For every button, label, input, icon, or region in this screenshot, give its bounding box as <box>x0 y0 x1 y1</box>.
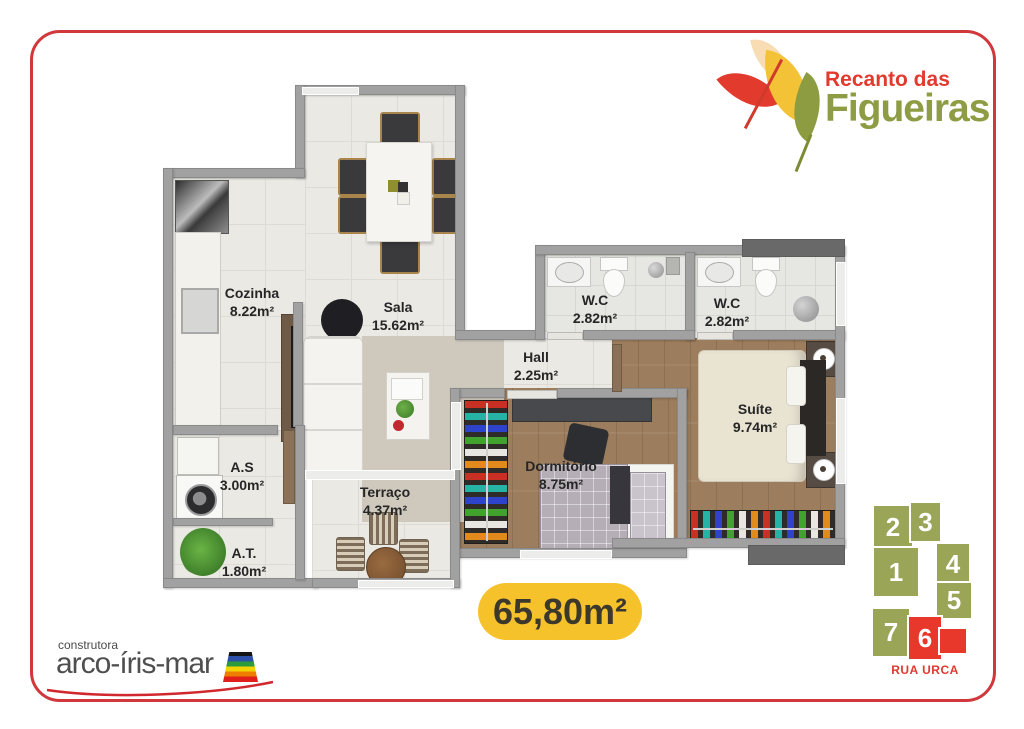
label-sala: Sala 15.62m² <box>343 299 453 334</box>
table-centerpiece <box>397 192 410 205</box>
window-wc2 <box>836 262 846 326</box>
door-wc2 <box>697 332 733 340</box>
wall-sala-right <box>455 85 465 338</box>
rainbow-trapezoid-icon <box>223 652 258 682</box>
dining-chair <box>380 112 420 146</box>
wall-left <box>163 168 173 588</box>
room-name: A.S <box>187 459 297 477</box>
door-suite <box>612 344 622 392</box>
room-name: A.T. <box>189 545 299 563</box>
room-area: 3.00m² <box>187 477 297 495</box>
keyplan-unit-7: 7 <box>871 607 911 658</box>
room-name: Sala <box>343 299 453 317</box>
total-area-badge: 65,80m² <box>478 583 642 640</box>
stove <box>175 180 229 234</box>
room-area: 2.82m² <box>672 313 782 331</box>
label-hall: Hall 2.25m² <box>481 349 591 384</box>
keyplan-unit-3: 3 <box>909 501 942 543</box>
dorm-bed-pillow <box>630 472 666 542</box>
wc2-vanity <box>697 257 741 287</box>
coffee-table-tray <box>391 378 423 400</box>
building-keyplan: 2 3 4 1 5 7 6 RUA URCA <box>862 495 982 690</box>
room-name: W.C <box>540 292 650 310</box>
wall-service-divider <box>173 518 273 526</box>
door-dormitorio <box>507 390 557 399</box>
room-area: 9.74m² <box>700 419 810 437</box>
room-area: 4.37m² <box>330 502 440 520</box>
builder-logo: construtora arco-íris-mar <box>45 636 275 698</box>
room-name: Dormitório <box>506 458 616 476</box>
label-suite: Suíte 9.74m² <box>700 401 810 436</box>
wall-hall-top-right <box>733 330 845 340</box>
wc1-shower-head <box>648 262 664 278</box>
dining-chair <box>380 240 420 274</box>
brand-name-line2: Figueiras <box>825 87 989 131</box>
wall-kitchen-divider <box>293 302 303 427</box>
window-terrace-bottom <box>358 580 454 588</box>
wall-shaft-top-right <box>742 239 845 257</box>
label-dormitorio: Dormitório 8.75m² <box>506 458 616 493</box>
label-terraco: Terraço 4.37m² <box>330 484 440 519</box>
keyplan-unit-2: 2 <box>872 504 914 550</box>
wall-step-vertical <box>295 85 305 178</box>
wall-service-top <box>173 425 278 435</box>
keyplan-unit-4: 4 <box>935 542 971 586</box>
wall-hall-top-mid <box>583 330 695 340</box>
room-name: Hall <box>481 349 591 367</box>
suite-lamp-dot <box>820 466 826 472</box>
room-area: 2.25m² <box>481 367 591 385</box>
dorm-wardrobe <box>464 400 508 544</box>
builder-swoosh <box>45 680 275 700</box>
wc1-sink <box>555 262 584 283</box>
wardrobe-rail <box>486 403 488 541</box>
sliding-door-terrace <box>305 470 455 480</box>
room-area: 1.80m² <box>189 563 299 581</box>
room-name: W.C <box>672 295 782 313</box>
table-centerpiece <box>398 182 408 192</box>
unit-number: 1 <box>889 557 903 588</box>
wall-dorm-suite-divider <box>677 388 687 548</box>
unit-number: 7 <box>884 617 898 648</box>
window-dorm <box>520 550 612 559</box>
wall-dorm-top-b <box>557 388 687 398</box>
terrace-chair <box>336 537 365 571</box>
door-wc1 <box>547 332 583 340</box>
label-area-servico: A.S 3.00m² <box>187 459 297 494</box>
keyplan-unit-6-extension <box>938 627 968 655</box>
room-name: Terraço <box>330 484 440 502</box>
wc2-shower-head <box>793 296 819 322</box>
sofa <box>303 336 363 476</box>
window-suite <box>836 398 846 484</box>
brand-logo: Recanto das Figueiras <box>728 35 990 150</box>
glass-door-dorm <box>451 402 461 470</box>
wc1-vanity <box>547 257 591 287</box>
dining-chair <box>338 158 368 196</box>
wc1-column <box>666 257 680 275</box>
room-area: 2.82m² <box>540 310 650 328</box>
unit-number: 6 <box>918 623 932 654</box>
keyplan-unit-1: 1 <box>872 546 920 598</box>
dorm-desk <box>512 396 652 422</box>
room-area: 15.62m² <box>343 317 453 335</box>
street-label: RUA URCA <box>880 663 970 677</box>
wc2-sink <box>705 262 734 283</box>
window-top <box>302 87 359 95</box>
label-wc2: W.C 2.82m² <box>672 295 782 330</box>
unit-number: 5 <box>947 585 961 616</box>
label-wc1: W.C 2.82m² <box>540 292 650 327</box>
dining-chair <box>338 196 368 234</box>
label-area-tecnica: A.T. 1.80m² <box>189 545 299 580</box>
wardrobe-rail <box>693 528 833 530</box>
suite-pillow <box>786 366 806 406</box>
wall-shaft-bottom-right <box>748 545 845 565</box>
table-plant <box>396 400 414 418</box>
floorplan-page: Recanto das Figueiras <box>0 0 1024 729</box>
unit-number: 4 <box>946 549 960 580</box>
unit-number: 2 <box>886 512 900 543</box>
room-name: Suíte <box>700 401 810 419</box>
wall-step-horizontal <box>163 168 305 178</box>
wall-void-bottom <box>455 330 545 340</box>
builder-name: arco-íris-mar <box>56 647 213 681</box>
total-area-value: 65,80m² <box>493 591 627 633</box>
room-area: 8.22m² <box>197 303 307 321</box>
room-area: 8.75m² <box>506 476 616 494</box>
red-bowl <box>393 420 404 431</box>
unit-number: 3 <box>918 507 932 538</box>
label-cozinha: Cozinha 8.22m² <box>197 285 307 320</box>
room-name: Cozinha <box>197 285 307 303</box>
